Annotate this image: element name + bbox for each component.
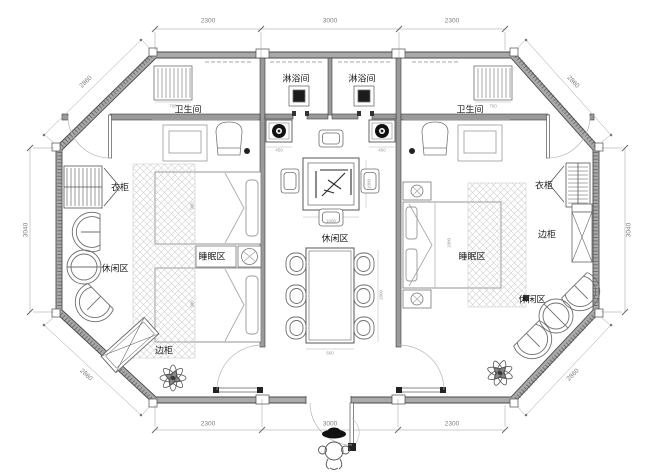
- dim-diag-bottom-left: 2860: [78, 368, 93, 383]
- dim-table-height: 1000: [367, 179, 372, 189]
- dim-bath-left-b: 1100: [228, 115, 238, 120]
- dim-basin-right: 450: [378, 148, 386, 153]
- room-label-shower-right: 淋浴间: [348, 72, 375, 85]
- room-label-leisure-left: 休闲区: [101, 262, 128, 275]
- dim-bottom-center: 3000: [323, 421, 337, 428]
- dim-bed-left-2: 900: [190, 300, 195, 308]
- dim-basin-left: 450: [275, 148, 283, 153]
- labels-layer: 淋浴间 淋浴间 卫生间 卫生间 衣柜 衣柜 睡眠区 睡眠区 休闲区 休闲区 休闲…: [0, 0, 651, 473]
- room-label-cabinet-left: 边柜: [155, 344, 173, 357]
- dim-diag-bottom-right: 2860: [565, 367, 580, 382]
- floor-plan-canvas: 淋浴间 淋浴间 卫生间 卫生间 衣柜 衣柜 睡眠区 睡眠区 休闲区 休闲区 休闲…: [0, 0, 651, 473]
- dim-diag-top-right: 2860: [565, 74, 580, 89]
- dim-top-center: 3000: [323, 18, 337, 25]
- dim-top-right: 2300: [445, 18, 459, 25]
- dim-bottom-right: 2300: [445, 421, 459, 428]
- dim-top-left: 2300: [201, 18, 215, 25]
- dim-left-side: 3040: [23, 223, 30, 237]
- room-label-leisure-right: 休闲区: [518, 293, 545, 306]
- dim-bottom-left: 2300: [201, 421, 215, 428]
- room-label-leisure-center: 休闲区: [321, 232, 348, 245]
- dim-right-side: 3040: [626, 223, 633, 237]
- room-label-shower-left: 淋浴间: [282, 72, 309, 85]
- room-label-sleeping-left: 睡眠区: [198, 250, 225, 263]
- dim-table-width: 1000: [326, 219, 336, 224]
- dim-diag-top-left: 2860: [78, 74, 93, 89]
- dim-bath-right-a: 1100: [420, 115, 430, 120]
- dim-bath-left-a: 1200: [175, 115, 185, 120]
- dim-shelf-left: 700: [169, 104, 177, 109]
- room-label-wardrobe-left: 衣柜: [111, 181, 129, 194]
- dim-shelf-right: 700: [489, 104, 497, 109]
- dim-dining-width: 600: [326, 351, 334, 356]
- room-label-wardrobe-right: 衣柜: [535, 179, 553, 192]
- room-label-cabinet-right: 边柜: [538, 228, 556, 241]
- dim-dining-height: 1800: [379, 290, 384, 300]
- dim-bath-right-b: 1200: [477, 115, 487, 120]
- dim-bed-left-1: 900: [190, 202, 195, 210]
- dim-bed-right: 1800: [447, 238, 452, 248]
- room-label-sleeping-right: 睡眠区: [458, 250, 485, 263]
